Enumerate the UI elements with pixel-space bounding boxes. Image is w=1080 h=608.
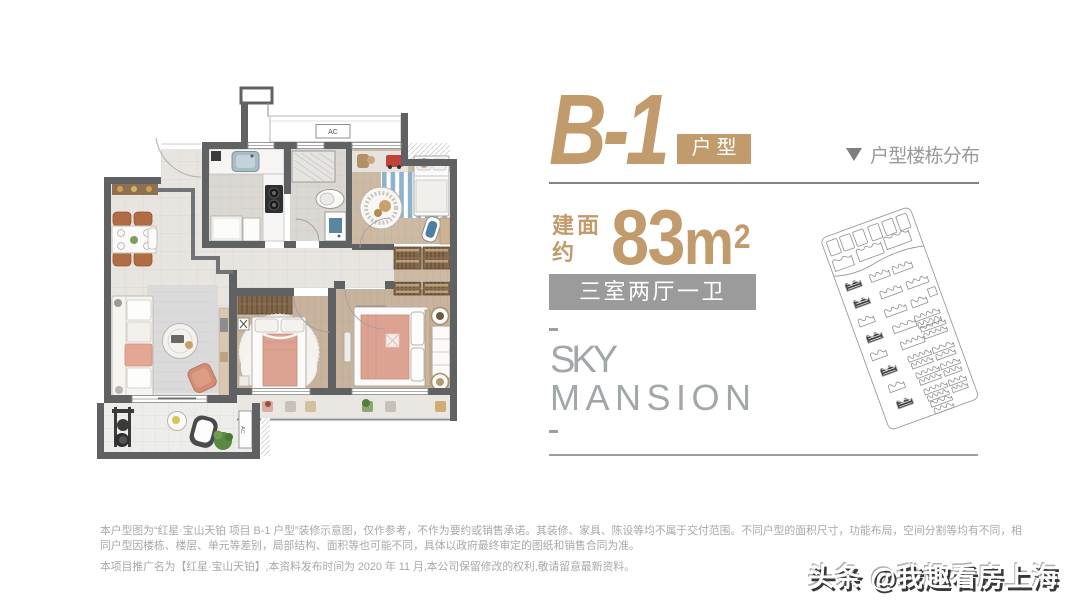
svg-text:AC: AC (328, 129, 338, 136)
svg-text:AC: AC (239, 426, 245, 434)
